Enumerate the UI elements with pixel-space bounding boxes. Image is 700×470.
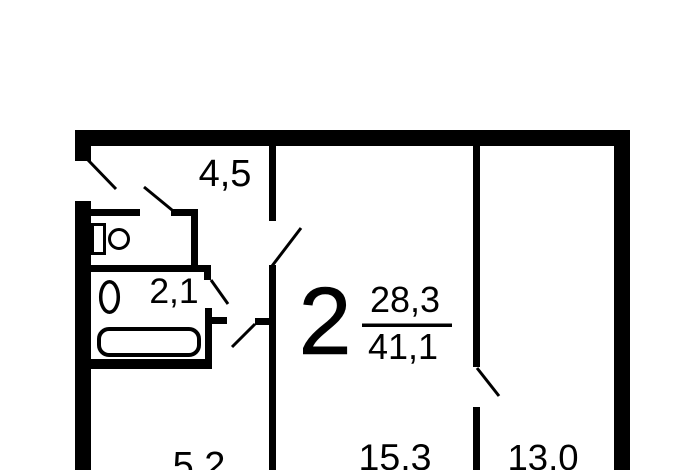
svg-text:2: 2 [298,269,351,375]
svg-text:13,0: 13,0 [507,437,578,470]
svg-text:15,3: 15,3 [359,436,432,470]
svg-text:28,3: 28,3 [370,279,440,320]
svg-text:2,1: 2,1 [149,271,198,311]
svg-text:5,2: 5,2 [173,445,226,470]
svg-text:4,5: 4,5 [199,153,252,195]
svg-text:41,1: 41,1 [368,326,438,367]
